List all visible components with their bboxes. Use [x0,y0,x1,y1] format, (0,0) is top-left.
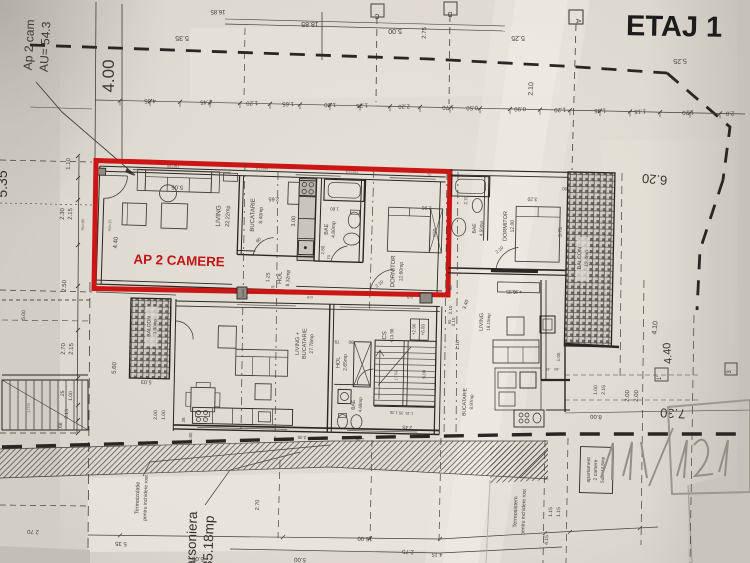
svg-text:2.10: 2.10 [448,305,453,314]
svg-text:1.20: 1.20 [681,109,694,115]
svg-text:Termosistem: Termosistem [512,496,519,528]
svg-text:.25: .25 [60,390,66,397]
svg-text:1.20: 1.20 [553,106,566,112]
svg-text:79: 79 [334,339,340,344]
svg-text:HOL: HOL [336,357,342,368]
svg-text:2.70: 2.70 [255,500,261,511]
svg-text:4.50mp: 4.50mp [479,221,484,237]
svg-text:LIVING: LIVING [215,205,223,227]
svg-text:2.15: 2.15 [601,385,607,395]
svg-text:4.40: 4.40 [113,236,120,249]
svg-text:.68: .68 [58,422,64,429]
svg-text:27.78mp: 27.78mp [309,334,315,354]
svg-text:5.25: 5.25 [511,34,525,41]
svg-text:BALCON: BALCON [577,247,583,270]
svg-text:5.25: 5.25 [673,57,687,64]
svg-text:2 camere: 2 camere [593,459,600,480]
svg-text:2.65mp: 2.65mp [343,354,349,371]
svg-text:6.95: 6.95 [506,288,516,294]
svg-text:2.80: 2.80 [320,245,326,255]
svg-text:1.05: 1.05 [556,352,561,361]
svg-text:7.30: 7.30 [660,405,686,421]
svg-text:2.15: 2.15 [64,409,70,419]
svg-text:BUCATARIE: BUCATARIE [250,198,257,232]
svg-text:BAE: BAE [472,223,478,234]
svg-text:5 35: 5 35 [114,540,127,546]
svg-text:5.00: 5.00 [21,310,27,320]
svg-text:apartament: apartament [586,456,593,482]
svg-text:0.50: 0.50 [465,104,478,110]
svg-text:1.10: 1.10 [455,340,461,350]
svg-text:5.60: 5.60 [112,361,118,374]
svg-text:2.75: 2.75 [422,26,428,39]
svg-text:1.00: 1.00 [593,385,599,395]
svg-text:BUCATARIE: BUCATARIE [302,328,309,359]
svg-text:2.70: 2.70 [463,195,469,205]
svg-text:8.32mp: 8.32mp [285,269,292,286]
svg-text:4.15: 4.15 [544,535,550,545]
svg-text:DORNITOR: DORNITOR [390,255,397,288]
svg-text:8.97mp: 8.97mp [469,394,475,410]
svg-text:4.15: 4.15 [432,551,443,557]
svg-text:3.75: 3.75 [557,227,564,237]
svg-text:2.15: 2.15 [68,207,74,220]
svg-text:17TR: 17TR [393,371,398,381]
svg-text:BAE: BAE [324,223,330,235]
svg-text:.45: .45 [553,367,559,372]
svg-text:Termoizolatie: Termoizolatie [134,482,141,515]
svg-text:+6.80: +6.80 [420,323,425,335]
svg-text:1.25: 1.25 [265,272,272,282]
svg-text:5.35: 5.35 [0,170,10,197]
svg-text:Hp=15: Hp=15 [107,219,113,232]
svg-text:8.00: 8.00 [589,413,602,419]
svg-text:12.60mp: 12.60mp [398,262,405,282]
svg-text:12.4mp: 12.4mp [584,250,590,267]
svg-text:4.00: 4.00 [99,59,118,92]
svg-text:1.70: 1.70 [441,103,454,109]
svg-text:2.50: 2.50 [62,279,68,292]
svg-text:1.80: 1.80 [188,432,193,441]
svg-text:90: 90 [348,340,354,345]
svg-text:DORMITOR: DORMITOR [503,211,510,241]
svg-text:4.10: 4.10 [651,321,659,335]
svg-text:1.15: 1.15 [548,507,554,517]
svg-text:1.00: 1.00 [68,391,74,401]
svg-text:2.00: 2.00 [625,389,631,402]
svg-text:5.00: 5.00 [191,555,204,561]
svg-text:5.35: 5.35 [175,34,189,41]
svg-text:4.40: 4.40 [661,342,675,364]
svg-text:2.00: 2.00 [634,389,640,402]
svg-text:0.9: 0.9 [406,295,412,300]
svg-text:.45: .45 [544,367,550,372]
svg-text:28: 28 [181,417,186,423]
svg-text:2.70: 2.70 [61,342,67,355]
svg-text:8.40mp: 8.40mp [258,207,265,224]
svg-text:CS: CS [382,331,388,339]
svg-text:2.45: 2.45 [297,435,306,440]
svg-text:1.10: 1.10 [66,157,72,170]
svg-text:AU= 54.3: AU= 54.3 [37,21,54,72]
svg-text:3.20: 3.20 [527,196,537,202]
svg-text:1.00: 1.00 [161,410,167,420]
svg-text:1.15: 1.15 [633,108,646,114]
svg-text:HOL: HOL [277,271,283,284]
svg-text:16.85: 16.85 [210,8,226,14]
svg-text:2.30: 2.30 [60,207,66,220]
svg-text:3.00: 3.00 [291,216,297,227]
svg-text:0.90: 0.90 [513,105,526,111]
svg-text:+13.98: +13.98 [389,328,394,342]
svg-text:ETAJ 1: ETAJ 1 [626,10,723,44]
svg-text:LIVING +: LIVING + [295,332,301,355]
svg-text:3.90mp: 3.90mp [152,318,157,334]
svg-text:LIVING: LIVING [479,313,486,331]
svg-text:+2.90: +2.90 [411,323,416,335]
svg-text:2.0: 2.0 [725,110,734,116]
svg-text:1.20: 1.20 [245,99,258,105]
svg-text:2.90: 2.90 [422,204,432,210]
svg-text:17TR: 17TR [26,403,31,413]
svg-text:2.75: 2.75 [401,548,414,554]
svg-text:4.68mp: 4.68mp [358,397,363,413]
svg-text:2.20: 2.20 [397,102,410,108]
svg-text:1': 1' [657,376,663,380]
svg-text:A: A [574,19,581,24]
svg-text:Hp=90: Hp=90 [80,218,86,231]
svg-text:2.10: 2.10 [528,82,535,96]
svg-text:1.15: 1.15 [556,507,562,517]
svg-text:2.15: 2.15 [69,342,75,355]
svg-text:5.03: 5.03 [141,378,152,384]
svg-text:1.60: 1.60 [330,206,339,211]
svg-text:5.00: 5.00 [388,27,402,34]
svg-text:2.00: 2.00 [153,410,159,420]
svg-text:22.22mp: 22.22mp [225,205,232,227]
svg-text:0.9: 0.9 [306,295,312,300]
svg-text:1.65: 1.65 [281,100,294,106]
svg-text:BAE: BAE [351,399,357,410]
svg-text:6.20: 6.20 [641,171,668,188]
svg-text:BUCATARIE: BUCATARIE [462,387,469,416]
svg-text:5.00: 5.00 [293,556,306,562]
svg-text:AP 2 CAMERE: AP 2 CAMERE [133,252,225,270]
svg-text:Ap 2 cam: Ap 2 cam [21,19,38,70]
svg-text:2 70: 2 70 [26,528,39,534]
svg-text:5.00: 5.00 [421,369,426,378]
svg-text:18.85: 18.85 [301,20,319,27]
svg-text:4.80mp: 4.80mp [331,221,338,238]
svg-text:K50: K50 [432,228,437,237]
svg-text:12.00: 12.00 [510,220,516,233]
svg-text:18.15mp: 18.15mp [486,313,492,331]
svg-text:1.25: 1.25 [355,102,368,108]
svg-text:90: 90 [448,285,453,291]
